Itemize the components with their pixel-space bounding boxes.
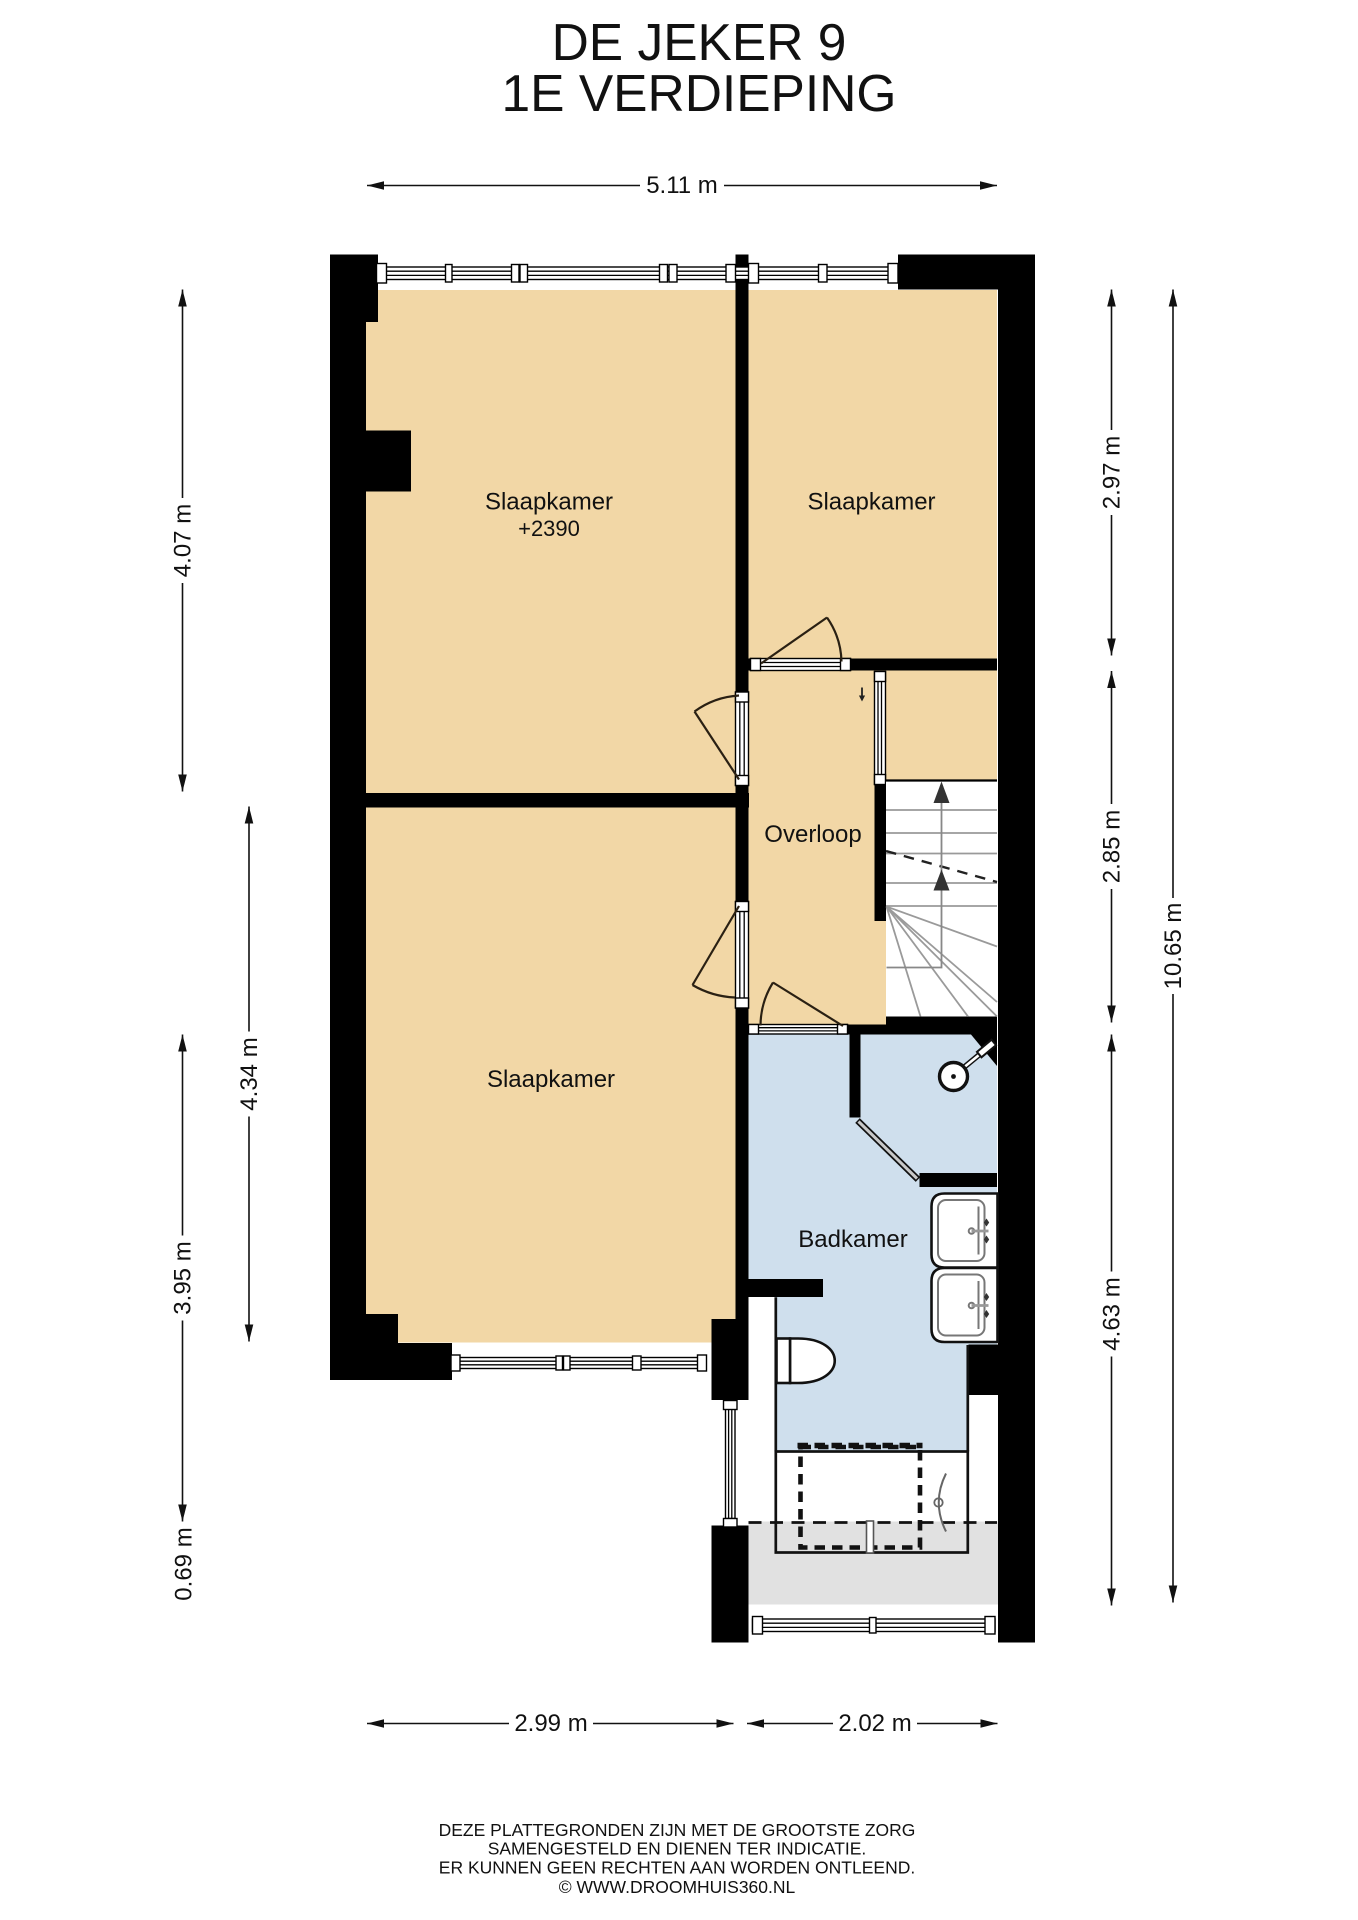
svg-text:Badkamer: Badkamer xyxy=(798,1226,907,1253)
svg-text:ER KUNNEN GEEN RECHTEN AAN WOR: ER KUNNEN GEEN RECHTEN AAN WORDEN ONTLEE… xyxy=(439,1858,915,1878)
svg-text:4.34 m: 4.34 m xyxy=(236,1037,263,1110)
svg-text:Slaapkamer: Slaapkamer xyxy=(487,1066,615,1093)
svg-text:Slaapkamer: Slaapkamer xyxy=(485,489,613,516)
svg-text:2.02 m: 2.02 m xyxy=(838,1710,911,1737)
svg-text:2.99 m: 2.99 m xyxy=(514,1710,587,1737)
svg-text:1E VERDIEPING: 1E VERDIEPING xyxy=(502,64,897,122)
svg-text:0.69 m: 0.69 m xyxy=(171,1527,198,1600)
svg-text:2.97 m: 2.97 m xyxy=(1099,436,1126,509)
svg-text:10.65 m: 10.65 m xyxy=(1160,903,1187,990)
svg-text:3.95 m: 3.95 m xyxy=(170,1241,197,1314)
svg-text:DEZE PLATTEGRONDEN ZIJN MET DE: DEZE PLATTEGRONDEN ZIJN MET DE GROOTSTE … xyxy=(439,1820,916,1840)
svg-text:SAMENGESTELD EN DIENEN TER IND: SAMENGESTELD EN DIENEN TER INDICATIE. xyxy=(488,1839,867,1859)
svg-text:4.63 m: 4.63 m xyxy=(1099,1277,1126,1350)
svg-text:2.85 m: 2.85 m xyxy=(1099,810,1126,883)
svg-text:Overloop: Overloop xyxy=(764,821,861,848)
svg-text:4.07 m: 4.07 m xyxy=(170,504,197,577)
svg-text:Slaapkamer: Slaapkamer xyxy=(807,489,935,516)
svg-text:5.11 m: 5.11 m xyxy=(646,172,718,199)
svg-text:© WWW.DROOMHUIS360.NL: © WWW.DROOMHUIS360.NL xyxy=(559,1877,796,1897)
svg-text:+2390: +2390 xyxy=(518,516,580,541)
svg-text:DE JEKER 9: DE JEKER 9 xyxy=(552,13,847,71)
